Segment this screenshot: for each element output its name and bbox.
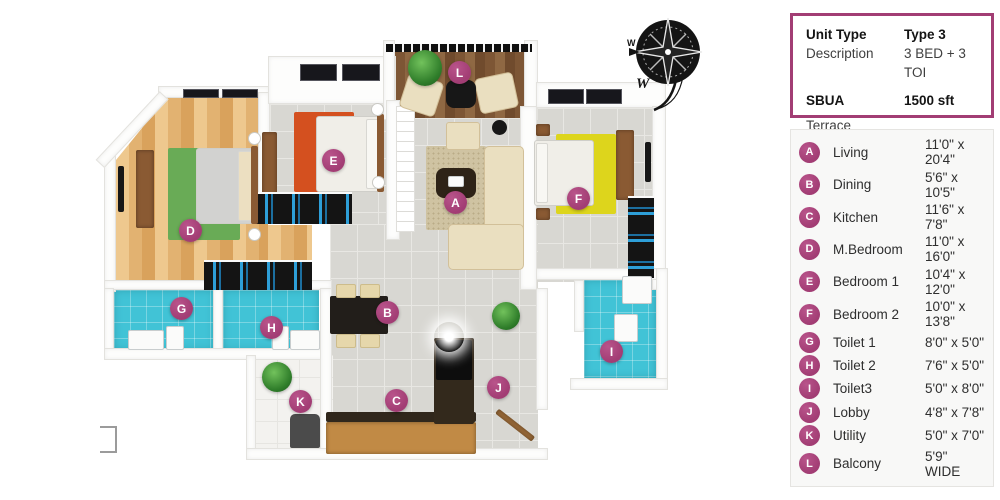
legend-room-name: Toilet3 [833,381,925,396]
tv-panel [645,142,651,182]
plan-room-marker: B [376,301,399,324]
legend-letter-badge: C [799,207,820,228]
unit-info-rows: Unit Type Type 3 Description 3 BED + 3 T… [806,25,991,135]
legend-letter-badge: J [799,402,820,423]
legend-row: A Living 11'0" x 20'4" [799,137,985,167]
ottoman [446,122,480,150]
legend-room-name: Toilet 1 [833,335,925,350]
nightstand [372,176,385,189]
plan-room-marker: I [600,340,623,363]
legend-row: D M.Bedroom 11'0" x 16'0" [799,234,985,264]
legend-letter-badge: E [799,271,820,292]
legend-room-name: Utility [833,428,925,443]
dining-chair [360,334,380,348]
floor-plan-page: ABCDEFGHIJKL W W Unit Type Type 3 Descri… [0,0,1000,500]
info-label: Description [806,44,904,82]
plan-room-marker: F [567,187,590,210]
legend-room-name: M.Bedroom [833,242,925,257]
nightstand [371,103,384,116]
legend-room-size: 8'0" x 5'0" [925,335,985,350]
legend-row: C Kitchen 11'6" x 7'8" [799,202,985,232]
wardrobe [204,260,312,290]
wardrobe [256,192,352,224]
info-value: 1500 sft [904,91,954,110]
sink [128,330,164,350]
legend-row: I Toilet3 5'0" x 8'0" [799,378,985,399]
nightstand [536,124,550,136]
window [586,89,622,104]
info-row: SBUA 1500 sft [806,91,991,110]
wall [104,288,114,352]
nightstand [248,132,261,145]
utility-plant [262,362,292,392]
legend-room-name: Bedroom 2 [833,307,925,322]
balcony-table [446,80,476,108]
plan-room-marker: A [444,191,467,214]
legend-room-size: 11'6" x 7'8" [925,202,985,232]
room-legend-panel: A Living 11'0" x 20'4" B Dining 5'6" x 1… [790,129,994,487]
kitchen-counter-front [326,422,476,454]
window [300,64,337,81]
info-value: 3 BED + 3 TOI [904,44,991,82]
wardrobe-unit [616,130,634,200]
dining-chair [336,334,356,348]
legend-row: J Lobby 4'8" x 7'8" [799,402,985,423]
toilet [166,326,184,350]
dining-chair [360,284,380,298]
sofa-throw [500,186,514,220]
sink [622,276,652,304]
bedroom2-bed-pillows [536,143,548,203]
plan-room-marker: D [179,219,202,242]
wall [656,268,668,390]
dining-chair [336,284,356,298]
legend-row: E Bedroom 1 10'4" x 12'0" [799,267,985,297]
info-row: Unit Type Type 3 [806,25,991,44]
legend-room-name: Balcony [833,456,925,471]
lobby-plant [492,302,520,330]
compass-west-label-2: W [636,76,651,92]
legend-letter-badge: L [799,453,820,474]
wall [652,106,666,290]
sink [290,330,320,350]
info-label: SBUA [806,91,904,110]
balcony-plant [408,50,442,86]
legend-room-size: 5'9" WIDE [925,449,985,479]
plan-room-marker: E [322,149,345,172]
legend-room-name: Lobby [833,405,925,420]
legend-room-name: Kitchen [833,210,925,225]
balcony-railing [386,44,532,52]
info-row: Description 3 BED + 3 TOI [806,44,991,82]
sofa-section [448,224,524,270]
toilet [614,314,638,342]
legend-room-name: Living [833,145,925,160]
legend-letter-badge: G [799,332,820,353]
legend-letter-badge: D [799,239,820,260]
legend-room-size: 10'4" x 12'0" [925,267,985,297]
window [183,89,219,98]
legend-letter-badge: F [799,304,820,325]
wall [536,288,548,410]
legend-letter-badge: B [799,174,820,195]
legend-room-size: 4'8" x 7'8" [925,405,985,420]
legend-room-size: 11'0" x 20'4" [925,137,985,167]
legend-room-size: 5'0" x 8'0" [925,381,985,396]
unit-info-panel: Unit Type Type 3 Description 3 BED + 3 T… [790,13,994,118]
info-value: Type 3 [904,25,946,44]
legend-room-size: 5'6" x 10'5" [925,170,985,200]
legend-row: H Toilet 2 7'6" x 5'0" [799,355,985,376]
legend-letter-badge: A [799,142,820,163]
coffee-table-tray [448,176,464,187]
dresser [136,150,154,228]
legend-room-name: Bedroom 1 [833,274,925,289]
compass-west-label: W [627,38,636,48]
plan-room-marker: H [260,316,283,339]
info-label: Unit Type [806,25,904,44]
floor-lamp [492,120,507,135]
legend-letter-badge: H [799,355,820,376]
nightstand [248,228,261,241]
plan-room-marker: L [448,61,471,84]
master-bed-headboard [251,146,258,224]
open-shelf-unit [628,196,654,278]
plan-room-marker: G [170,297,193,320]
legend-row: G Toilet 1 8'0" x 5'0" [799,332,985,353]
plan-corner-detail [100,426,117,453]
utility-bin [290,414,320,448]
hall-shelf-cabinet [396,106,415,232]
legend-room-name: Dining [833,177,925,192]
wall [213,288,223,352]
legend-row: B Dining 5'6" x 10'5" [799,170,985,200]
legend-row: F Bedroom 2 10'0" x 13'8" [799,299,985,329]
window [342,64,380,81]
legend-room-name: Toilet 2 [833,358,925,373]
nightstand [536,208,550,220]
wall [574,280,584,332]
master-bed-pillows [238,151,252,221]
wall [570,378,668,390]
plan-room-marker: C [385,389,408,412]
wall [104,152,116,292]
legend-letter-badge: K [799,425,820,446]
window [548,89,584,104]
window [222,89,258,98]
plan-room-marker: K [289,390,312,413]
legend-room-size: 10'0" x 13'8" [925,299,985,329]
wall [246,355,256,452]
legend-room-size: 11'0" x 16'0" [925,234,985,264]
legend-row: K Utility 5'0" x 7'0" [799,425,985,446]
pendant-light [434,322,464,352]
plan-room-marker: J [487,376,510,399]
compass-icon: W W [626,6,706,112]
legend-row: L Balcony 5'9" WIDE [799,449,985,479]
tv-panel [118,166,124,212]
legend-letter-badge: I [799,378,820,399]
legend-room-size: 5'0" x 7'0" [925,428,985,443]
legend-room-size: 7'6" x 5'0" [925,358,985,373]
